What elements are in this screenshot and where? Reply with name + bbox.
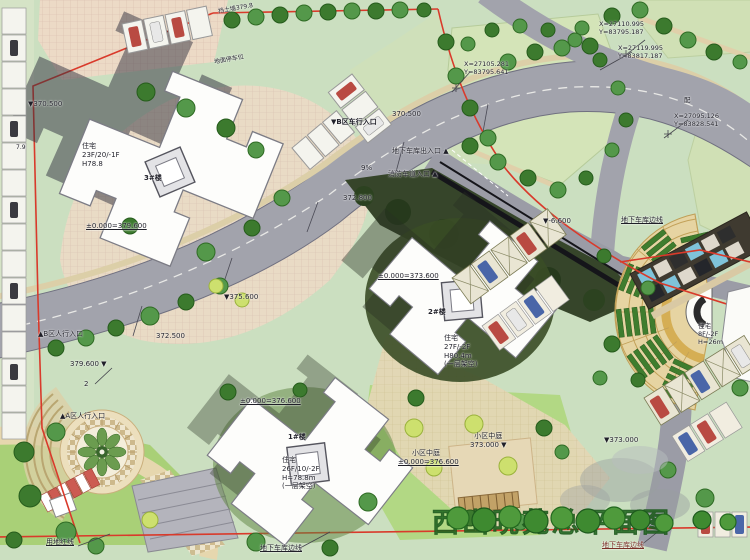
garage-exit-label: 地下车库出入口 ▲ [392,147,449,156]
garage-edge-label-s: 地下车库边线 [260,544,302,553]
fire-lane-label: 消防车道入口 ▲ [388,170,438,179]
tower3-elevation: ±0.000=379.600 [86,222,147,231]
tower1-info: 住宅 26F/10/-2F H=78.8m (一层架空) [282,456,320,491]
tower1-label: 1#楼 [288,433,306,442]
mandala-flower [78,428,126,476]
site-plan-canvas: 西山晓苑总平面图 [0,0,750,560]
elevation-6-6: ▼-6.600 [543,217,571,226]
coordinate-label-1: X=27110.995 Y=83795.187 [599,20,644,36]
elevation-372-5: 372.500 [156,332,185,341]
garage-edge-label-se: 地下车库边线 [602,541,644,550]
tower2-info: 住宅 27F/-2F H80.4m (一层架空) [444,334,477,369]
elevation-373-0: ▼373.000 [604,436,638,445]
slope-label: 9% [361,164,372,173]
elevation-372-8: 372.800 [343,194,372,203]
dim-79-label: 7.9 [16,144,26,152]
road-number-label: 2 [84,380,88,389]
site-plan: 西山晓苑总平面图 挡土墙379.8 地面停车位 X=27110.995 Y=83… [0,0,750,560]
elevation-370-5-road: 370.500 [392,110,421,119]
coordinate-label-3: X=27119.995 Y=83817.187 [618,44,663,60]
elevation-376-6: ±0.000=376.600 [398,458,459,467]
tower3-label: 3#楼 [144,174,162,183]
tower2-label: 2#楼 [428,308,446,317]
tower1-elevation: ±0.000=376.600 [240,397,301,406]
entrance-ped-a: ▲A区人行入口 [60,412,105,421]
tower8f-info: 住宅 8F/-2F H=26m [698,322,723,346]
tower2-elevation: ±0.000=373.600 [378,272,439,281]
atrium-label-b: 小区中庭 [412,449,440,458]
elevation-370-5-top: ▼370.500 [28,100,62,109]
red-line-label: 用地红线 [46,538,74,547]
coordinate-label-4: X=27095.126 Y=83828.541 [674,112,719,128]
garage-edge-label-ne: 地下车库边线 [621,216,663,225]
coordinate-label-2: X=27105.281 Y=83795.641 [464,60,509,76]
entrance-ped-b: ▲B区人行入口 [38,330,83,339]
distribution-label: 配 [684,96,691,104]
elevation-379-6: 379.600 ▼ [70,360,107,369]
tower3-info: 住宅 23F/20/-1F H78.8 [82,142,120,168]
atrium-label-a: 小区中庭 373.000 ▼ [470,432,507,450]
entrance-vehicle-b: ▼B区车行入口 [331,118,377,127]
elevation-375-6: ▼375.600 [224,293,258,302]
